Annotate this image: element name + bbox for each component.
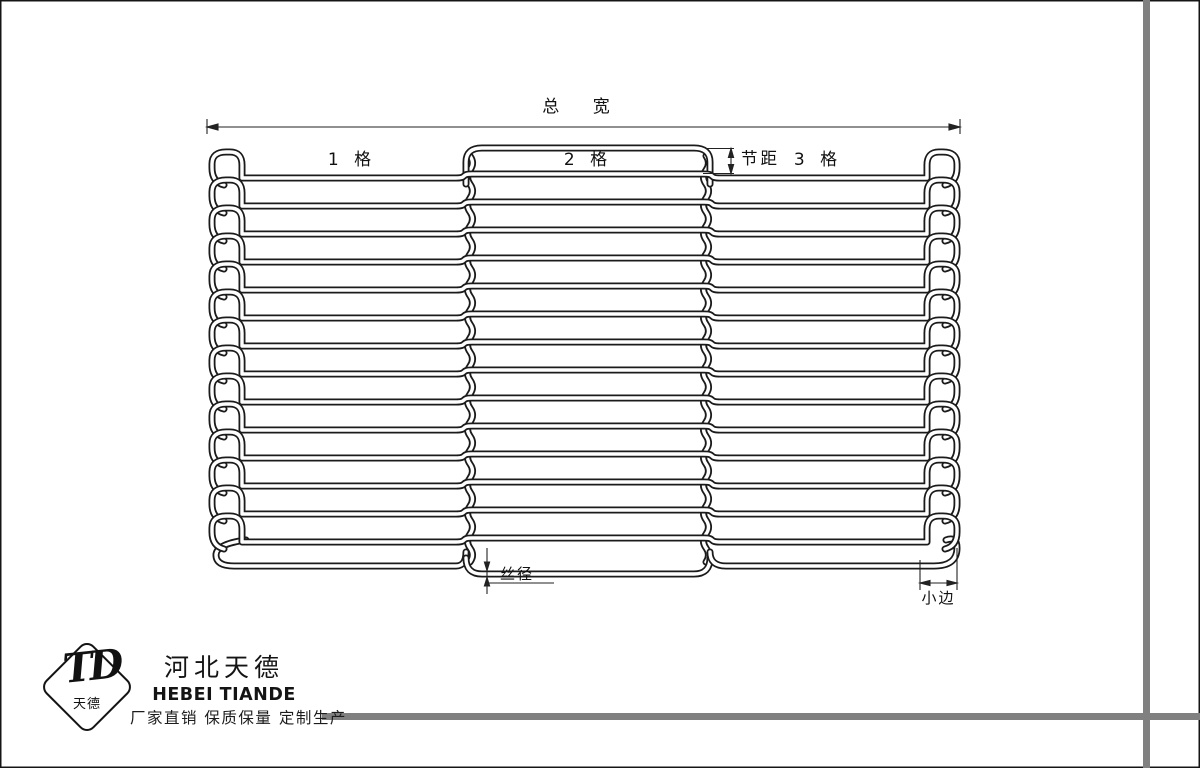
wire-row [212, 320, 957, 353]
panel2-label: 2 格 [564, 150, 612, 170]
right-arrow-icon [947, 580, 957, 585]
page: 总 宽 节距 丝径 小边 1 [0, 0, 1200, 768]
dimension-total-width: 总 宽 [207, 97, 960, 134]
wire-row [212, 460, 957, 493]
wire-row [212, 236, 957, 269]
wire-row [212, 376, 957, 409]
belt-wires [212, 148, 957, 574]
logo-chinese-text: 天德 [49, 693, 125, 712]
down-arrow-icon [728, 165, 733, 174]
frame-vertical-bar [1143, 0, 1150, 768]
wire-row [212, 208, 957, 241]
dimension-pitch: 节距 [703, 149, 780, 174]
company-name-chinese: 河北天德 [150, 648, 298, 684]
left-arrow-icon [207, 124, 218, 130]
right-arrow-icon [949, 124, 960, 130]
left-arrow-icon [920, 580, 930, 585]
wire-row [212, 404, 957, 437]
panel3-label: 3 格 [794, 150, 842, 170]
frame-horizontal-bar [322, 713, 1200, 720]
down-arrow-icon [484, 562, 489, 571]
panel1-label: 1 格 [328, 150, 376, 170]
wire-row [212, 292, 957, 325]
wire-row [212, 432, 957, 465]
wire-row [212, 348, 957, 381]
wire-row [212, 180, 957, 213]
company-slogan: 厂家直销 保质保量 定制生产 [130, 706, 347, 728]
logo-inner: TD 天德 [55, 655, 119, 719]
pitch-label: 节距 [741, 149, 780, 168]
logo-td-mark: TD [61, 640, 122, 693]
wire-row [212, 264, 957, 297]
wire-row [212, 516, 957, 549]
up-arrow-icon [728, 149, 733, 158]
small-edge-label: 小边 [921, 589, 955, 607]
up-arrow-icon [484, 578, 489, 587]
wire-diameter-label: 丝径 [500, 565, 534, 583]
company-name-english: HEBEI TIANDE [150, 685, 298, 705]
wire-row [212, 488, 957, 521]
company-names: 河北天德 HEBEI TIANDE [150, 648, 298, 705]
total-width-label: 总 宽 [542, 97, 623, 117]
